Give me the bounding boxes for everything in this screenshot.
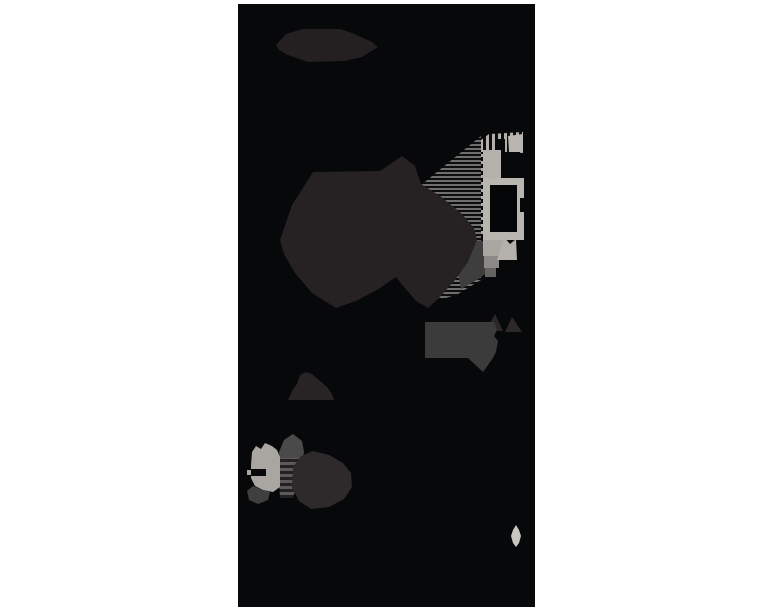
rail-hook: [508, 134, 523, 153]
rail-step-3: [485, 268, 496, 277]
figure-nub: [247, 470, 251, 475]
photo-field: [238, 4, 535, 607]
page-background: [0, 0, 768, 614]
photo: [0, 0, 768, 614]
rail-step-2: [484, 256, 499, 268]
rail-window: [490, 185, 517, 232]
figure-slot: [251, 469, 266, 476]
rail-frame-notch: [520, 198, 524, 212]
rail-upper-block: [483, 150, 501, 180]
bright-figure: [251, 443, 280, 492]
rail-c-notch: [502, 152, 520, 178]
